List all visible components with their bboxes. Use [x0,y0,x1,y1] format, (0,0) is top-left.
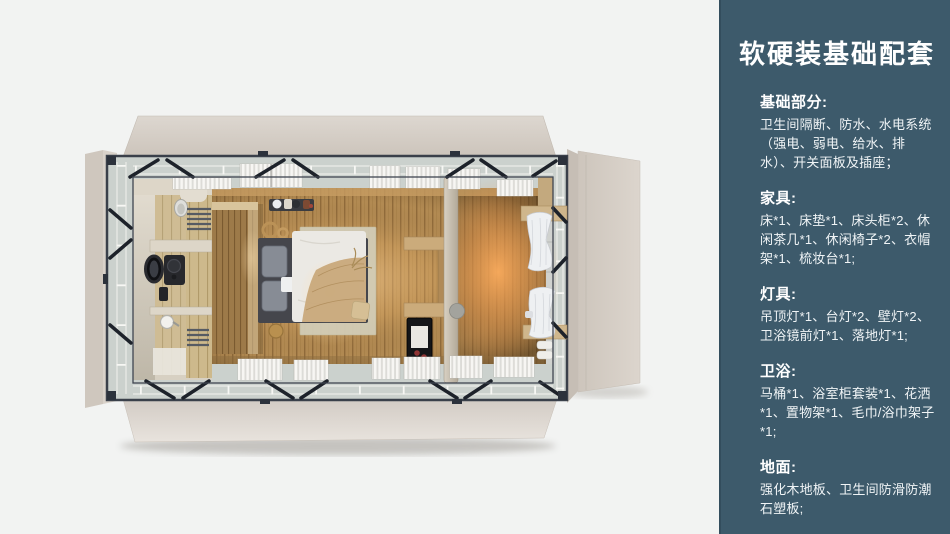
fold-panel-right [578,151,640,392]
blind-group [494,357,534,377]
fold-panel-left-outer [85,150,103,408]
slide: 软硬装基础配套 基础部分: 卫生间隔断、防水、水电系统（强电、弱电、给水、排水）… [0,0,950,534]
blind-group [497,180,533,196]
coat-rack [269,199,314,211]
spec-section-body: 床*1、床垫*1、床头柜*2、休闲茶几*1、休闲椅子*2、衣帽架*1、梳妆台*1… [760,211,936,268]
spec-section-heading: 灯具: [760,283,936,304]
blind-group [238,359,282,380]
spec-section-body: 卫生间隔断、防水、水电系统（强电、弱电、给水、排水）、开关面板及插座； [760,115,936,172]
vanity-mirror [146,256,163,282]
basket [269,324,283,338]
pouf [450,304,465,319]
floor-plan-render [0,0,719,534]
spec-section: 灯具: 吊顶灯*1、台灯*2、壁灯*2、卫浴镜前灯*1、落地灯*1; [760,283,936,345]
spec-section-heading: 地面: [760,456,936,477]
spec-section-body: 马桶*1、浴室柜套装*1、花洒*1、置物架*1、毛巾/浴巾架子*1; [760,384,936,441]
headboard-wall [212,202,264,354]
curtain-tie [525,311,533,318]
spec-section: 基础部分: 卫生间隔断、防水、水电系统（强电、弱电、给水、排水）、开关面板及插座… [760,91,936,172]
corner-block [538,177,553,206]
blind-group [372,358,400,379]
blind-group [450,356,482,378]
wardrobe-partition [444,177,458,383]
floor-plan-svg [0,0,719,534]
blind-group [173,178,231,189]
bathroom [133,179,212,380]
spec-section: 家具: 床*1、床垫*1、床头柜*2、休闲茶几*1、休闲椅子*2、衣帽架*1、梳… [760,187,936,268]
towel-roll-1 [537,341,553,349]
spec-section-heading: 基础部分: [760,91,936,112]
fold-panel-top [123,116,556,157]
foot-cushion [351,301,370,320]
spec-section-heading: 家具: [760,187,936,208]
spec-section-body: 强化木地板、卫生间防滑防潮石塑板; [760,480,936,518]
spec-section-body: 吊顶灯*1、台灯*2、壁灯*2、卫浴镜前灯*1、落地灯*1; [760,307,936,345]
spec-section-heading: 卫浴: [760,360,936,381]
bed [258,227,376,338]
towel-roll-2 [537,351,553,359]
toilet [175,200,188,217]
spec-section: 卫浴: 马桶*1、浴室柜套装*1、花洒*1、置物架*1、毛巾/浴巾架子*1; [760,360,936,441]
fold-panel-bottom [123,399,557,442]
bathroom-wood-wall [186,182,212,378]
divider-wall-2 [150,307,212,315]
right-end-wall [567,149,578,403]
divider-wall-1 [150,240,212,252]
spec-section: 地面: 强化木地板、卫生间防滑防潮石塑板; [760,456,936,518]
blind-group [294,360,328,380]
sidebar-title: 软硬装基础配套 [739,34,936,71]
spec-sidebar: 软硬装基础配套 基础部分: 卫生间隔断、防水、水电系统（强电、弱电、给水、排水）… [719,0,950,534]
blind-group [404,357,440,379]
spec-sections: 基础部分: 卫生间隔断、防水、水电系统（强电、弱电、给水、排水）、开关面板及插座… [760,91,936,518]
